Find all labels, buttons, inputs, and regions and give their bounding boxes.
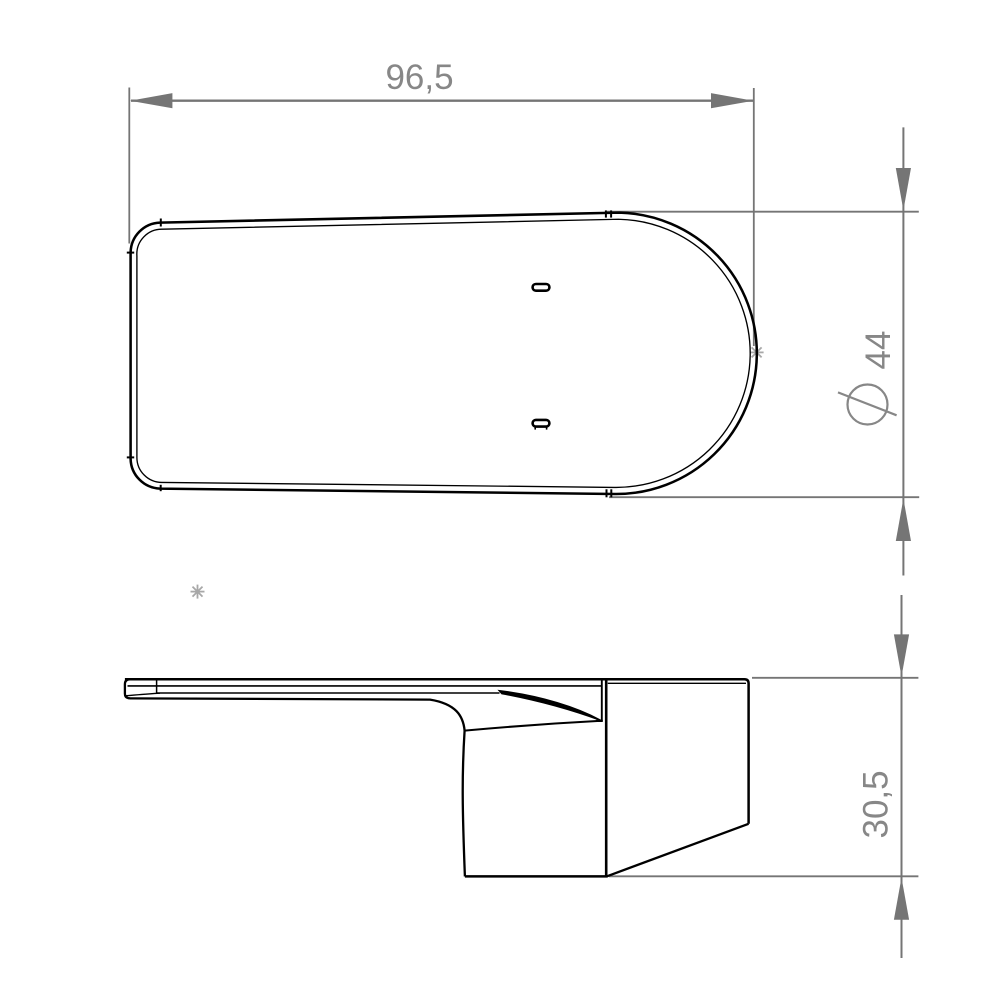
svg-text:30,5: 30,5 [857,770,896,838]
svg-text:96,5: 96,5 [385,58,453,97]
svg-text:44: 44 [859,331,898,370]
